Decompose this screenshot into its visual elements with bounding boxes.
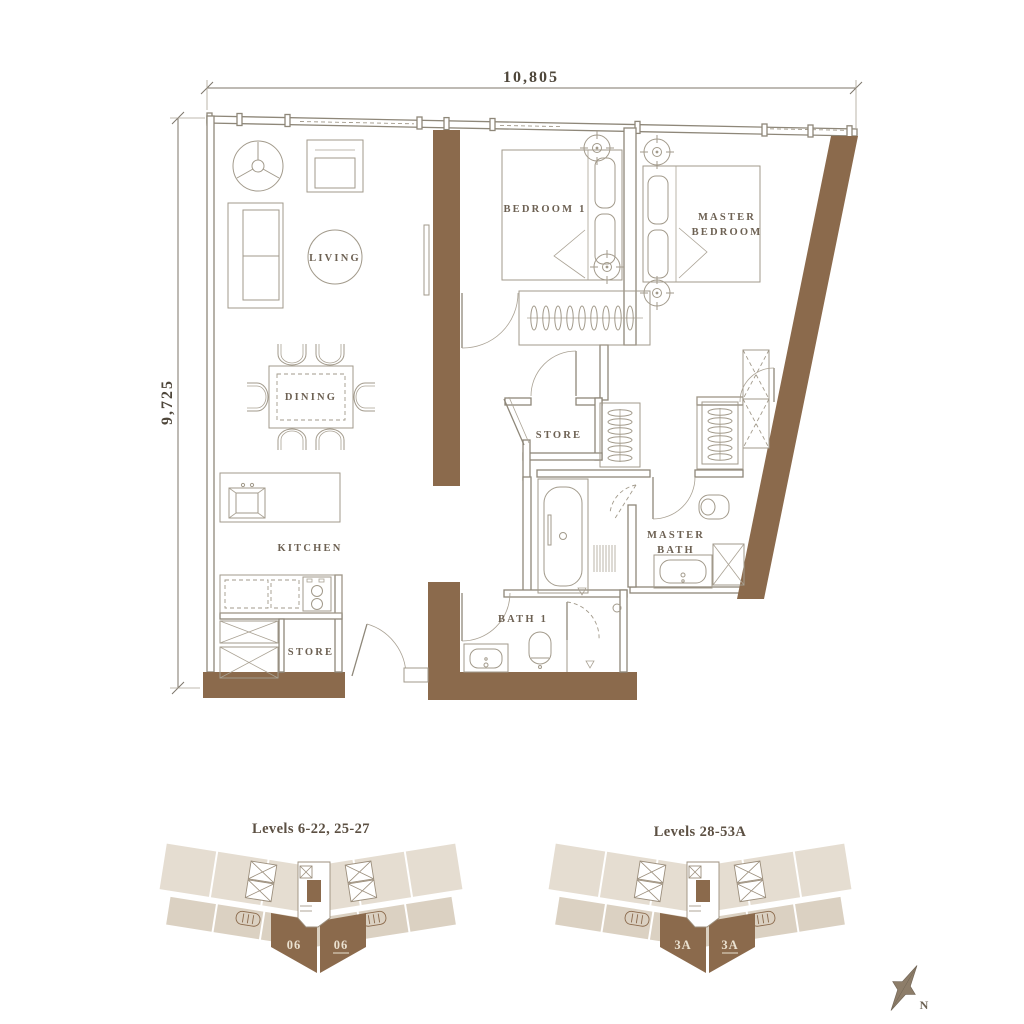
sofa bbox=[228, 203, 283, 308]
dimension-left: 9,725 bbox=[159, 112, 205, 694]
master-shower-box bbox=[713, 544, 744, 585]
compass-rose: N bbox=[891, 966, 929, 1013]
kitchen-island bbox=[220, 473, 340, 522]
master-bedroom-label-1: MASTER bbox=[698, 212, 756, 223]
wall-bedroom-divider bbox=[624, 128, 636, 345]
compass-north-label: N bbox=[920, 998, 929, 1012]
key-plan-low-building bbox=[154, 844, 467, 973]
window-wall-top bbox=[207, 116, 857, 136]
key-plan-high-title: Levels 28-53A bbox=[654, 824, 747, 840]
wardrobe-left bbox=[600, 403, 640, 467]
appliance-boxes bbox=[220, 621, 278, 678]
shower-floor-grate bbox=[578, 545, 615, 595]
floor-plan-drawing: 10,805 9,725 bbox=[0, 0, 1024, 1024]
downlight-icon bbox=[580, 131, 614, 165]
bath1-group: BATH 1 bbox=[464, 602, 621, 672]
ceiling-fan-icon bbox=[233, 141, 283, 191]
service-shaft bbox=[743, 350, 769, 448]
bedroom1-bed bbox=[502, 150, 622, 280]
floor-plan-page: 10,805 9,725 bbox=[0, 0, 1024, 1024]
key-plan-high-levels: Levels 28-53A 3A 3A bbox=[543, 824, 856, 973]
brown-wall-bath1 bbox=[428, 582, 637, 700]
store-entry-label: STORE bbox=[288, 647, 334, 658]
living-furniture: LIVING DINING bbox=[228, 140, 429, 450]
key-plan-low-levels: Levels 6-22, 25-27 06 06 bbox=[154, 821, 467, 973]
dimension-width-label: 10,805 bbox=[503, 69, 559, 86]
bedroom1-door bbox=[462, 293, 518, 348]
dimension-height-label: 9,725 bbox=[159, 379, 176, 425]
master-bath-sink bbox=[654, 555, 712, 588]
bath1-sink bbox=[464, 644, 508, 672]
master-bath-label-2: BATH bbox=[657, 545, 695, 556]
master-bedroom-group: MASTER BEDROOM bbox=[643, 166, 762, 282]
kitchen-counter bbox=[220, 575, 342, 613]
master-bedroom-label-2: BEDROOM bbox=[692, 227, 763, 238]
master-bath-door bbox=[653, 477, 695, 519]
key-plan-low-title: Levels 6-22, 25-27 bbox=[252, 821, 370, 837]
master-bed bbox=[643, 166, 760, 282]
key-plan-high-unit-right: 3A bbox=[721, 938, 738, 952]
key-plan-high-building bbox=[543, 844, 856, 973]
wall-left bbox=[207, 116, 214, 672]
downlight-icon bbox=[640, 135, 674, 169]
tv-console bbox=[424, 225, 429, 295]
wardrobe-right bbox=[697, 397, 743, 469]
armchair bbox=[307, 140, 363, 192]
key-plan-high-unit-left: 3A bbox=[674, 938, 691, 952]
bath1-shower bbox=[567, 602, 621, 672]
living-label: LIVING bbox=[309, 253, 361, 264]
master-bath-label-1: MASTER bbox=[647, 530, 705, 541]
bathtub bbox=[538, 479, 588, 593]
dining-set: DINING bbox=[247, 344, 375, 450]
brown-wall-living-divider bbox=[433, 130, 460, 486]
master-bath-group: MASTER BATH bbox=[538, 479, 744, 595]
master-bath-toilet bbox=[699, 495, 729, 519]
key-plan-low-unit-left: 06 bbox=[287, 938, 302, 952]
entrance-door bbox=[352, 624, 428, 682]
corridor-door bbox=[531, 351, 576, 396]
key-plan-low-unit-right: 06 bbox=[334, 938, 349, 952]
dining-label: DINING bbox=[285, 392, 337, 403]
kitchen-sink bbox=[229, 483, 265, 518]
store-inner-label: STORE bbox=[536, 430, 582, 441]
bedroom1-label: BEDROOM 1 bbox=[503, 204, 586, 215]
bath1-toilet bbox=[529, 632, 551, 669]
stove bbox=[303, 577, 331, 611]
downlight-icon bbox=[640, 276, 674, 310]
bath1-label: BATH 1 bbox=[498, 614, 548, 625]
kitchen-label: KITCHEN bbox=[278, 543, 343, 554]
living-label-circle: LIVING bbox=[308, 230, 362, 284]
